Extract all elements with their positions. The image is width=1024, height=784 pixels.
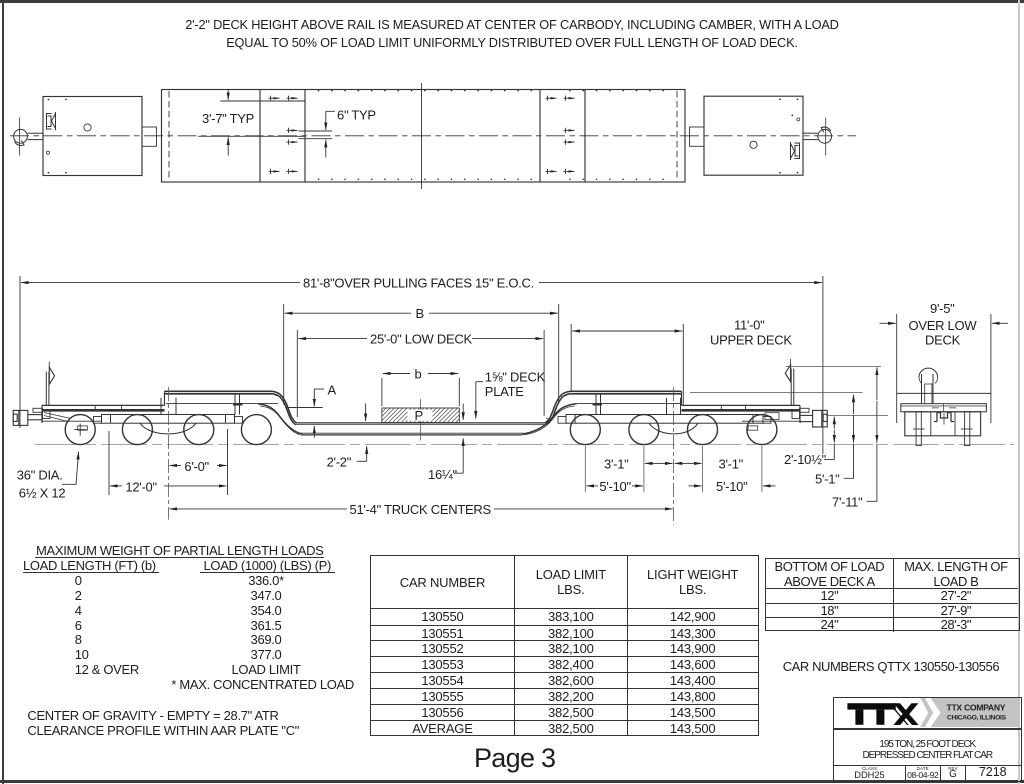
svg-text:UPPER DECK: UPPER DECK (710, 333, 792, 348)
svg-text:b: b (415, 366, 422, 381)
svg-text:PLATE: PLATE (485, 384, 524, 399)
svg-text:36" DIA.: 36" DIA. (17, 467, 63, 482)
svg-text:6½ X 12: 6½ X 12 (19, 486, 66, 501)
svg-text:B: B (416, 306, 424, 321)
svg-text:3'-1": 3'-1" (719, 457, 744, 472)
svg-text:2'-2": 2'-2" (327, 455, 352, 470)
svg-text:P: P (415, 408, 423, 423)
svg-text:16¼": 16¼" (428, 467, 457, 482)
svg-text:81'-8"OVER PULLING FACES 15" E: 81'-8"OVER PULLING FACES 15" E.O.C. (303, 276, 534, 291)
svg-text:1⅝" DECK: 1⅝" DECK (485, 370, 546, 385)
svg-text:25'-0" LOW DECK: 25'-0" LOW DECK (370, 331, 472, 346)
svg-text:5'-1": 5'-1" (815, 472, 840, 487)
svg-text:A: A (328, 382, 337, 397)
svg-text:51'-4" TRUCK CENTERS: 51'-4" TRUCK CENTERS (350, 502, 492, 517)
svg-text:2'-10½": 2'-10½" (784, 452, 827, 467)
svg-text:11'-0": 11'-0" (734, 318, 765, 333)
svg-text:6" TYP: 6" TYP (337, 108, 376, 123)
svg-text:5'-10": 5'-10" (599, 479, 631, 494)
svg-text:OVER LOW: OVER LOW (909, 318, 978, 333)
svg-text:3'-7" TYP: 3'-7" TYP (202, 111, 254, 126)
svg-text:TTX COMPANY: TTX COMPANY (946, 703, 1005, 713)
svg-text:7'-11": 7'-11" (832, 494, 863, 509)
svg-text:5'-10": 5'-10" (716, 479, 748, 494)
svg-text:CHICAGO, ILLINOIS: CHICAGO, ILLINOIS (947, 715, 1007, 722)
svg-text:12'-0": 12'-0" (125, 479, 157, 494)
svg-text:9'-5": 9'-5" (930, 301, 955, 316)
svg-text:3'-1": 3'-1" (604, 457, 629, 472)
svg-text:DECK: DECK (925, 332, 961, 347)
svg-text:6'-0": 6'-0" (184, 459, 209, 474)
